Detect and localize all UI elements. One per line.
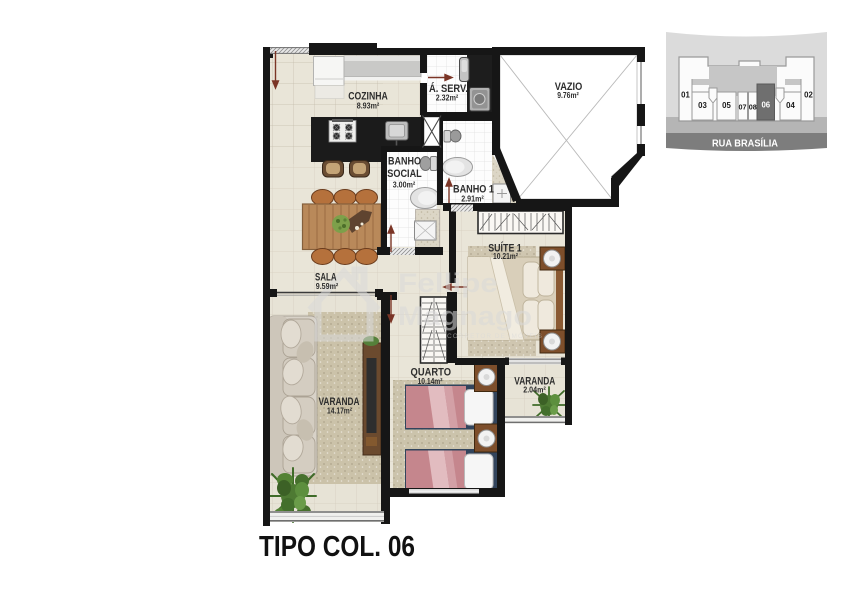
svg-text:BANHO: BANHO: [388, 156, 421, 168]
svg-text:2.32m²: 2.32m²: [436, 94, 459, 103]
svg-text:9.76m²: 9.76m²: [557, 91, 579, 100]
svg-text:07: 07: [739, 103, 747, 112]
svg-text:02: 02: [804, 91, 813, 100]
svg-text:14.17m²: 14.17m²: [327, 407, 352, 416]
svg-text:9.59m²: 9.59m²: [316, 282, 339, 291]
svg-text:06: 06: [761, 101, 770, 110]
svg-text:TIPO COL. 06: TIPO COL. 06: [259, 531, 415, 563]
svg-text:8.93m²: 8.93m²: [357, 102, 380, 111]
svg-text:CORRETOR DE IMÓVEIS: CORRETOR DE IMÓVEIS: [447, 331, 543, 340]
svg-text:RUA BRASÍLIA: RUA BRASÍLIA: [712, 137, 778, 150]
svg-text:SOCIAL: SOCIAL: [387, 168, 422, 180]
svg-text:2.91m²: 2.91m²: [461, 195, 484, 204]
svg-text:08: 08: [749, 103, 757, 112]
svg-text:3.00m²: 3.00m²: [393, 181, 416, 190]
svg-text:01: 01: [681, 91, 690, 100]
svg-text:2.04m²: 2.04m²: [523, 386, 546, 395]
svg-text:05: 05: [722, 101, 731, 110]
svg-text:10.14m²: 10.14m²: [418, 377, 443, 386]
svg-text:04: 04: [786, 101, 795, 110]
svg-text:03: 03: [698, 101, 707, 110]
svg-text:10.21m²: 10.21m²: [493, 252, 518, 261]
svg-text:Fellipe: Fellipe: [398, 268, 498, 298]
svg-text:Magnago: Magnago: [398, 301, 532, 331]
